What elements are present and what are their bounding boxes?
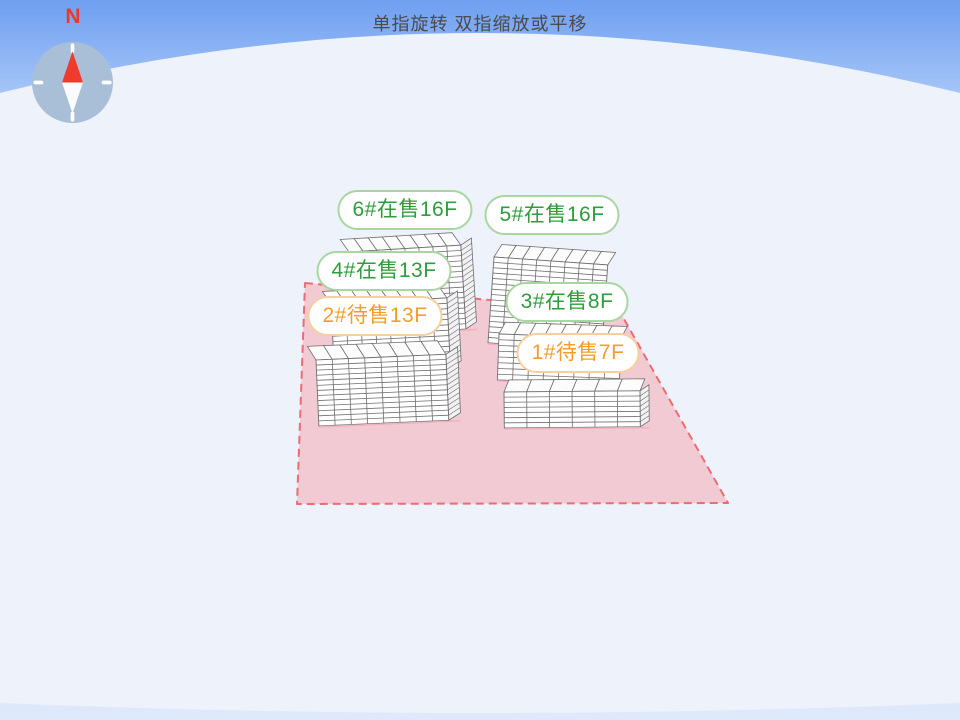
building-label-1[interactable]: 1#待售7F bbox=[517, 333, 640, 373]
building-label-3[interactable]: 3#在售8F bbox=[506, 282, 629, 322]
map-canvas[interactable] bbox=[0, 0, 960, 720]
compass-tick-west bbox=[33, 81, 43, 85]
compass-icon[interactable] bbox=[27, 37, 118, 128]
compass-north-label: N bbox=[58, 5, 88, 29]
sandbox-map[interactable]: 单指旋转 双指缩放或平移 N 6#在售16F 5#在售16F 4#在售13F 2… bbox=[0, 0, 960, 720]
compass-tick-east bbox=[102, 81, 112, 85]
gesture-hint-text: 单指旋转 双指缩放或平移 bbox=[0, 10, 960, 36]
building-1[interactable] bbox=[504, 379, 649, 429]
building-label-5[interactable]: 5#在售16F bbox=[484, 195, 619, 235]
building-2[interactable] bbox=[307, 340, 460, 427]
building-label-2[interactable]: 2#待售13F bbox=[307, 296, 442, 336]
building-label-4[interactable]: 4#在售13F bbox=[316, 251, 451, 291]
building-label-6[interactable]: 6#在售16F bbox=[337, 190, 472, 230]
